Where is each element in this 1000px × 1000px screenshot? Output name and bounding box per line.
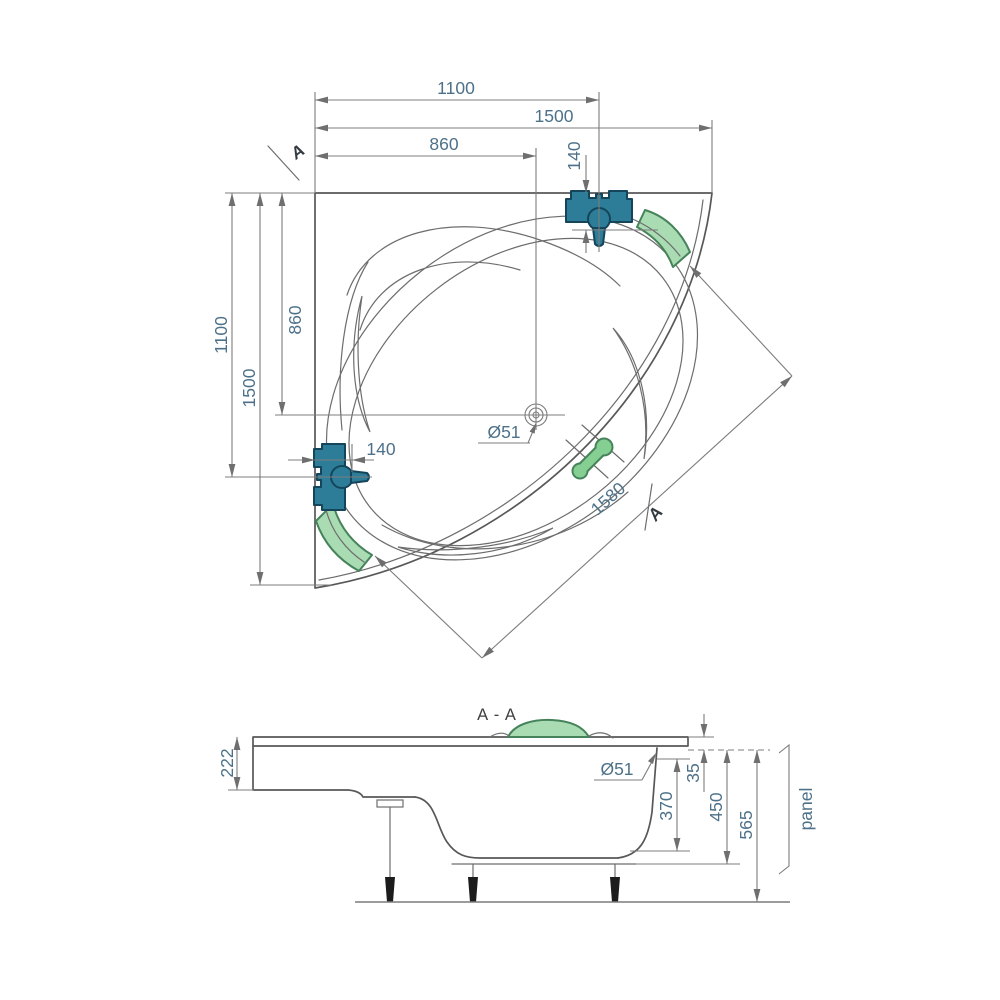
drawing-canvas: 1100 1500 860 140 1100 1500 860 140 Ø51 …	[0, 0, 1000, 1000]
handle-end-2	[597, 440, 612, 455]
basin-well-outer	[259, 145, 764, 631]
ext-1580-lower	[375, 556, 482, 658]
top-view: 1100 1500 860 140 1100 1500 860 140 Ø51 …	[211, 78, 794, 661]
section-rim	[253, 737, 688, 746]
dim-label-1100-left: 1100	[211, 316, 231, 354]
section-headrest	[508, 720, 589, 737]
dim-line-1580	[482, 376, 792, 658]
section-marker-a-upper: A	[286, 141, 308, 164]
grab-handle	[566, 425, 624, 480]
dim-label-35: 35	[683, 763, 703, 782]
dim-label-140-left: 140	[366, 439, 395, 459]
dim-label-860-left: 860	[285, 305, 305, 334]
section-arrows	[234, 724, 761, 902]
handle-end-1	[574, 465, 587, 478]
tub-rim-inner-edge	[319, 200, 703, 580]
panel-label: panel	[796, 788, 816, 831]
leg-3-foot	[610, 877, 620, 902]
rim-contour-wave-echo	[360, 262, 520, 330]
dim-label-860-top: 860	[429, 134, 458, 154]
ext-1580-upper	[690, 266, 792, 376]
section-view: A - A	[217, 706, 816, 902]
leg-1-foot	[385, 877, 395, 902]
section-title: A - A	[477, 706, 517, 724]
tub-outline	[315, 193, 712, 588]
dim-label-1500-left: 1500	[239, 368, 259, 407]
section-legs	[385, 807, 620, 902]
dim-label-1500-top: 1500	[535, 106, 574, 126]
dim-label-565: 565	[736, 810, 756, 839]
armrest-slot-right	[613, 328, 647, 459]
section-shell-bottom	[415, 797, 618, 858]
panel-bracket	[779, 745, 789, 874]
leg-2-foot	[468, 877, 478, 902]
dim-label-140-top: 140	[564, 141, 584, 170]
dim-label-450: 450	[706, 792, 726, 821]
drain-label-section: Ø51	[600, 759, 633, 779]
dim-label-370: 370	[656, 791, 676, 820]
dim-label-1580: 1580	[587, 478, 630, 519]
bathtub-technical-drawing: 1100 1500 860 140 1100 1500 860 140 Ø51 …	[0, 0, 1000, 1000]
headrest-bottom-left	[316, 504, 372, 571]
top-view-arrows	[229, 97, 795, 661]
top-view-dimension-lines	[232, 100, 792, 658]
section-shell-left	[253, 746, 415, 797]
section-support-bracket	[377, 800, 403, 807]
dim-label-1100-top: 1100	[437, 78, 475, 98]
armrest-slot-left	[354, 296, 370, 432]
drain-label-top-view: Ø51	[487, 422, 520, 442]
dim-label-222: 222	[217, 748, 237, 777]
section-marker-a-lower: A	[644, 503, 667, 525]
top-view-extension-lines	[225, 92, 712, 585]
rim-contour-wave	[347, 227, 620, 295]
